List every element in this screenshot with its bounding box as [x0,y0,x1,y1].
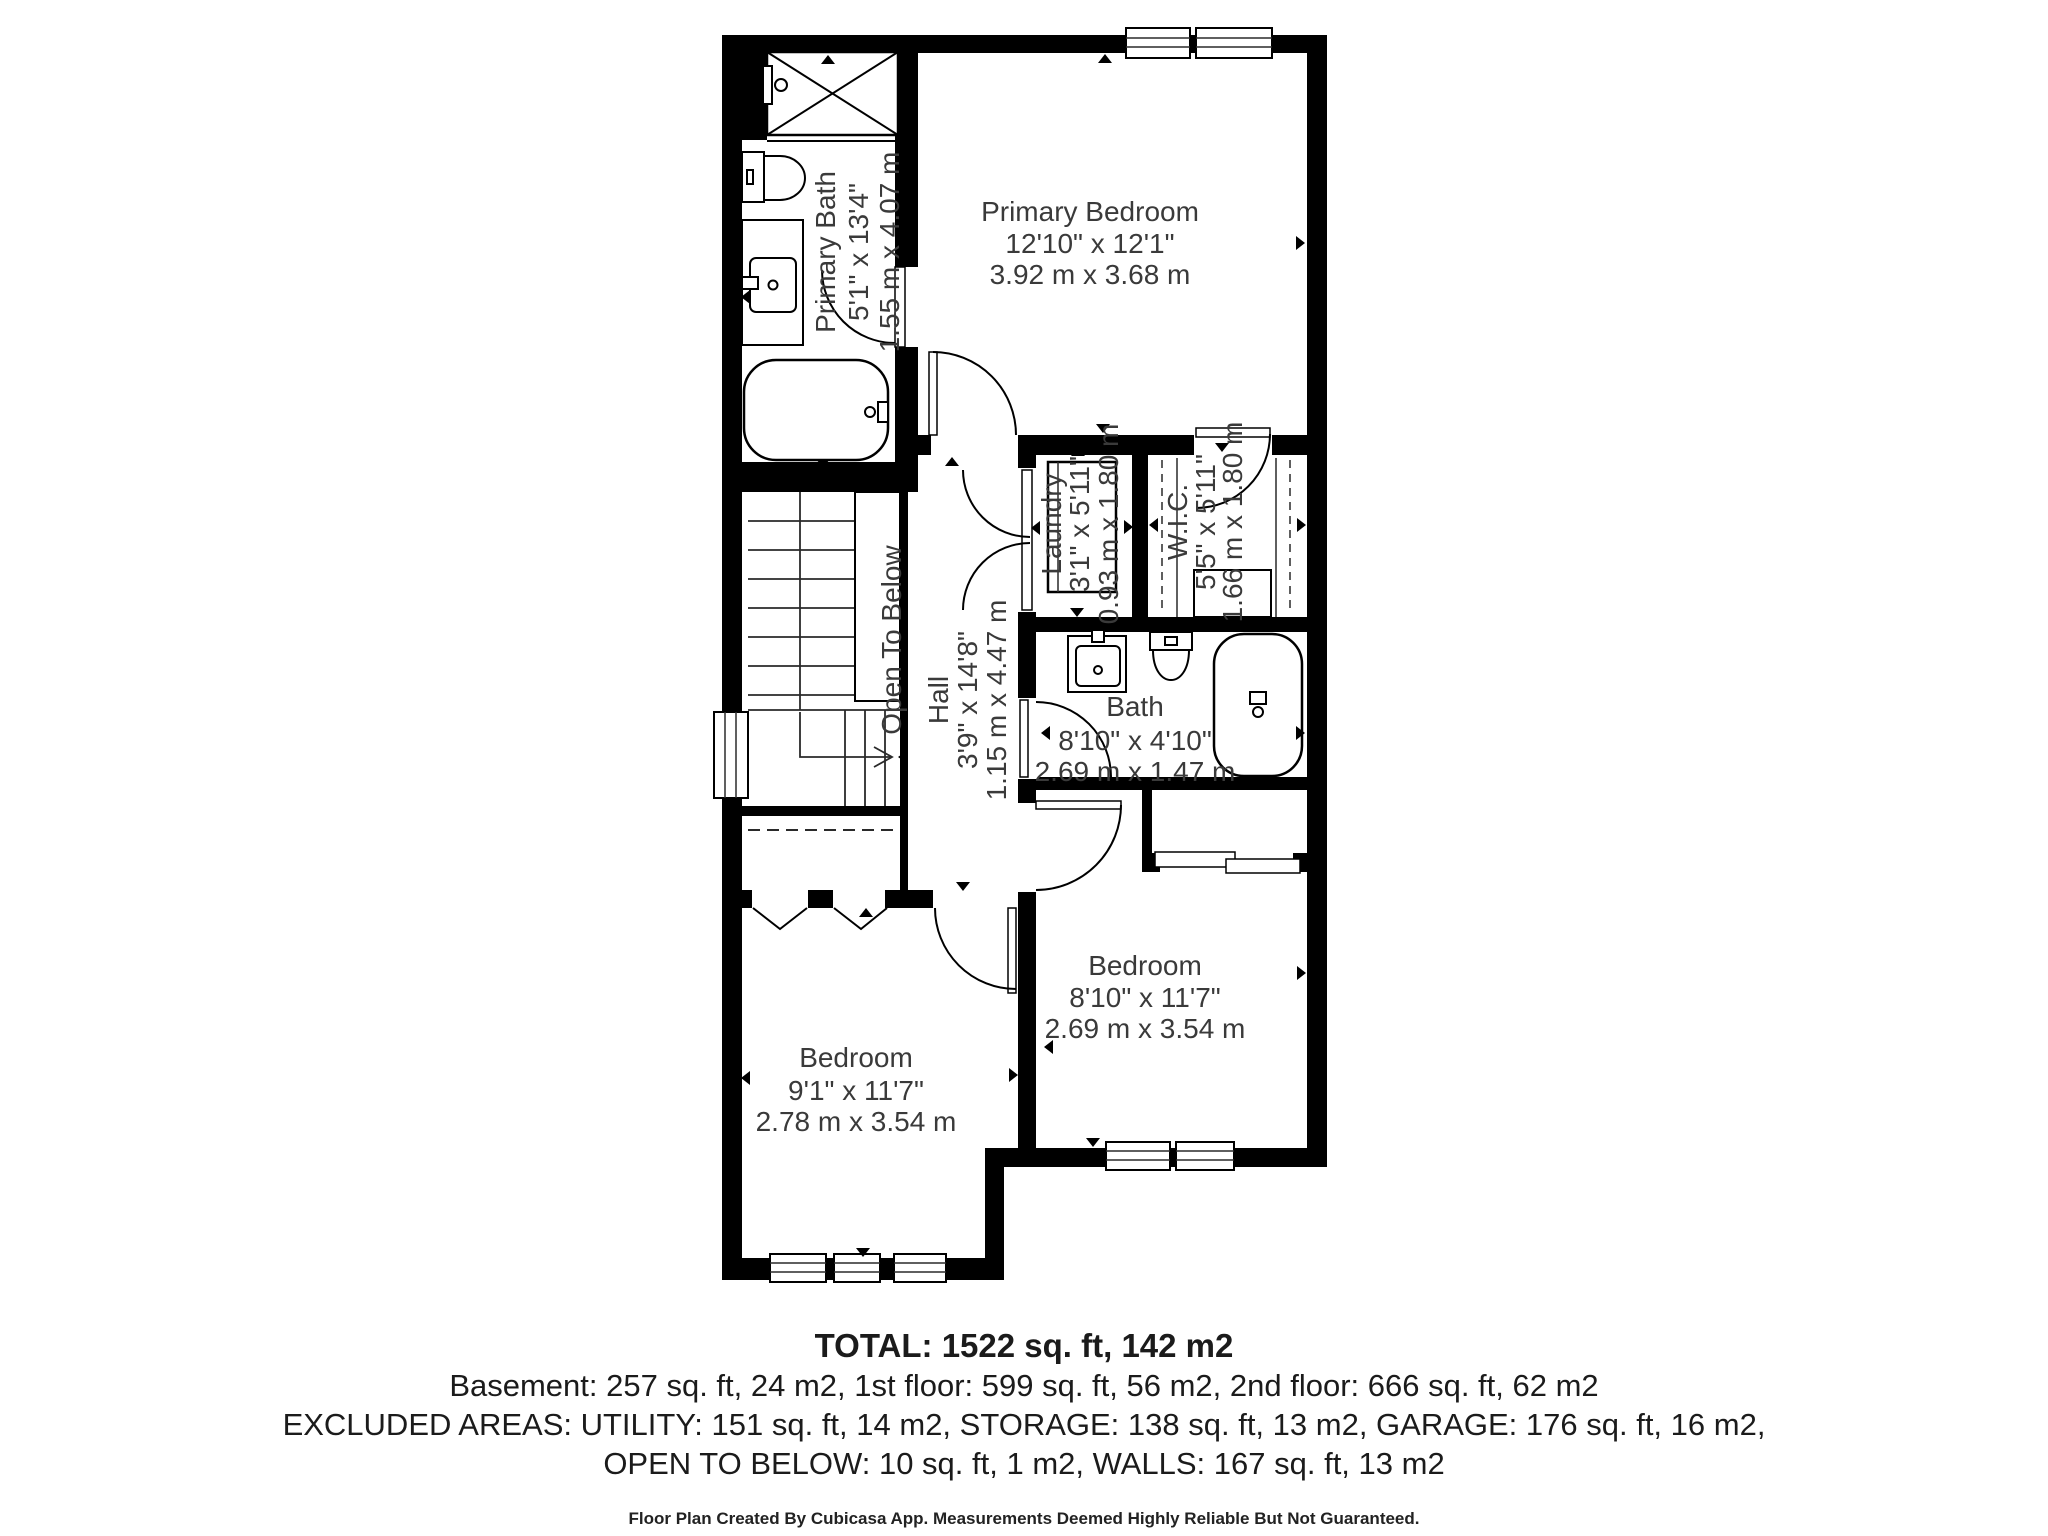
room-dim-imperial: 3'1" x 5'11" [1064,456,1095,592]
room-name: Laundry [1036,473,1067,574]
room-dim-metric: 2.69 m x 3.54 m [1045,1013,1246,1044]
room-dim-imperial: 8'10" x 11'7" [1069,982,1220,1013]
tub-knob [865,407,875,417]
room-name: Bedroom [799,1042,913,1073]
area-summary: TOTAL: 1522 sq. ft, 142 m2 Basement: 257… [0,1326,2048,1529]
summary-excluded-2: OPEN TO BELOW: 10 sq. ft, 1 m2, WALLS: 1… [0,1444,2048,1483]
room-dim-metric: 2.69 m x 1.47 m [1035,756,1236,787]
bath-toilet-bowl [1153,650,1189,680]
closet-opening-b [833,888,885,910]
room-dim-metric: 0.93 m x 1.80 m [1093,424,1124,625]
vanity-drain [769,281,778,290]
wall-laundry-wic-bottom [1018,617,1307,632]
wall-above-left-bedroom-a [722,890,752,908]
wall-left [722,35,742,1280]
tub-faucet [878,402,888,422]
room-dim-imperial: 8'10" x 4'10" [1058,725,1212,756]
closet-chevron-left [753,908,807,929]
room-name: Primary Bedroom [981,196,1199,227]
room-label-bath: Bath 8'10" x 4'10" 2.69 m x 1.47 m [1035,691,1236,787]
shower-head-bar [763,66,772,104]
laundry-door-panels [1022,470,1032,610]
wall-below-primary-bedroom-c [1270,435,1327,455]
room-dim-imperial: 9'1" x 11'7" [788,1075,924,1106]
room-name: W.I.C. [1162,484,1193,560]
bath-tub-faucet [1250,692,1266,704]
vanity-faucet [742,277,758,289]
window-left-bedroom-bottom [770,1254,946,1282]
room-name: Bath [1106,691,1164,722]
floor-plan-page: Primary Bedroom 12'10" x 12'1" 3.92 m x … [0,0,2048,1536]
summary-total: TOTAL: 1522 sq. ft, 142 m2 [0,1326,2048,1366]
summary-excluded-1: EXCLUDED AREAS: UTILITY: 151 sq. ft, 14 … [0,1405,2048,1444]
bedroom-right-door-arc [1036,805,1121,890]
wall-laundry-wic-divider [1132,435,1148,617]
room-dim-metric: 1.55 m x 4.07 m [874,152,905,353]
bath-faucet [1092,630,1104,642]
wall-bedrooms-divider [1018,890,1036,1148]
bedroom-right-door-gap [1016,803,1038,892]
room-dim-metric: 3.92 m x 3.68 m [990,259,1191,290]
summary-footer: Floor Plan Created By Cubicasa App. Meas… [0,1509,2048,1529]
bedroom-left-door-gap [933,888,1018,910]
room-name: Primary Bath [810,171,841,333]
wall-primarybath-bottom [722,462,918,492]
primary-bedroom-door-gap [931,433,1018,457]
room-label-bedroom-right: Bedroom 8'10" x 11'7" 2.69 m x 3.54 m [1045,950,1246,1044]
bedroom-left-door-arc [935,908,1016,989]
room-name: Hall [923,676,954,724]
primary-bedroom-door-panel [929,352,937,435]
wall-right [1307,35,1327,1167]
floor-plan-drawing: Primary Bedroom 12'10" x 12'1" 3.92 m x … [0,0,2048,1536]
wall-above-left-bedroom-b [808,890,833,908]
room-dim-metric: 2.78 m x 3.54 m [756,1106,957,1137]
room-dim-metric: 1.15 m x 4.47 m [981,600,1012,801]
toilet-bowl [764,156,805,200]
room-dim-metric: 1.66 m x 1.80 m [1217,422,1248,623]
room-dim-imperial: 12'10" x 12'1" [1005,228,1174,259]
bath-toilet-button [1165,637,1177,645]
bedroom-right-door-panel [1036,801,1121,809]
bath-drain [1094,666,1102,674]
summary-floors: Basement: 257 sq. ft, 24 m2, 1st floor: … [0,1366,2048,1405]
room-dim-imperial: 3'9" x 14'8" [952,631,983,769]
wall-stairs-closet [742,806,908,816]
shower-wall-chunk [722,52,767,140]
wall-hall-east-a [1018,435,1036,470]
closet-chevron-right [834,908,887,929]
primary-bedroom-door-arc [933,352,1016,435]
open-to-below-label: Open To Below [876,545,907,735]
window-right-bedroom-bottom [1106,1142,1234,1170]
room-label-hall: Hall 3'9" x 14'8" 1.15 m x 4.47 m [923,600,1012,801]
toilet-button [747,170,753,184]
bedroom-left-door-panel [1008,908,1016,993]
window-primary-bedroom-top [1126,28,1272,58]
room-name: Bedroom [1088,950,1202,981]
bath-door-panel [1020,700,1028,777]
wall-below-primary-bedroom-a [895,435,933,455]
closet-opening-a [752,888,808,910]
room-label-bedroom-left: Bedroom 9'1" x 11'7" 2.78 m x 3.54 m [756,1042,957,1137]
room-label-primary-bedroom: Primary Bedroom 12'10" x 12'1" 3.92 m x … [981,196,1199,290]
shower-knob [775,79,787,91]
sliding-door-panel-b [1226,859,1300,873]
window-stairs-left [714,712,748,798]
wall-above-left-bedroom-c [885,890,935,908]
wall-jog [985,1148,1004,1280]
wall-above-left-bedroom-d [1016,890,1036,908]
bath-tub-knob [1253,707,1263,717]
sliding-door-panel-a [1155,852,1235,867]
room-label-primary-bath: Primary Bath 5'1" x 13'4" 1.55 m x 4.07 … [810,152,905,353]
room-dim-imperial: 5'1" x 13'4" [843,183,874,321]
